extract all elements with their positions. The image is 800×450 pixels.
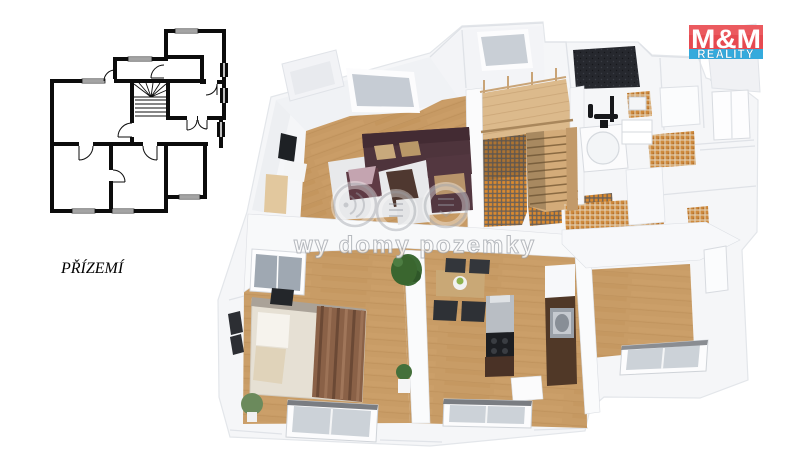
svg-text:PŘÍZEMÍ: PŘÍZEMÍ [60, 258, 125, 277]
svg-text:REALITY: REALITY [697, 49, 755, 61]
svg-text:wy domy pozemky: wy domy pozemky [293, 232, 536, 259]
